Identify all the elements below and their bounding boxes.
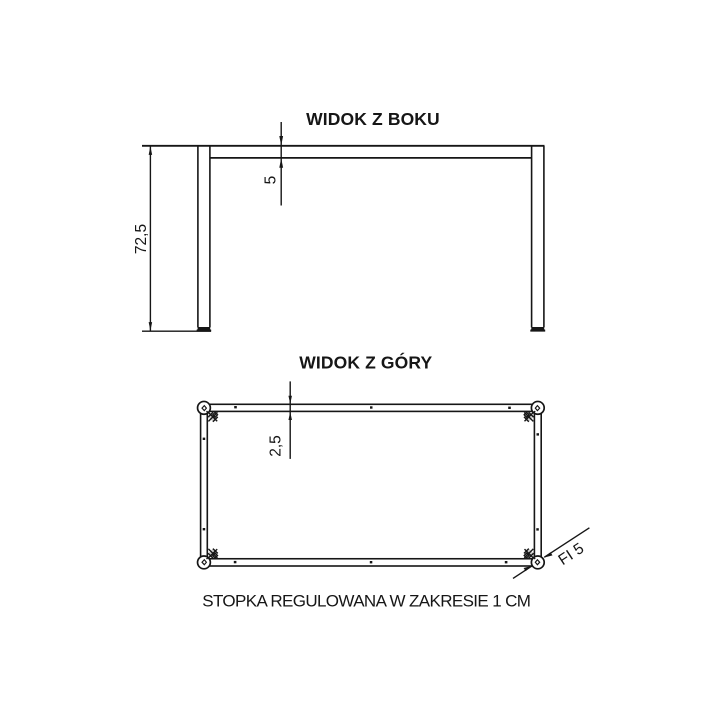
svg-text:5: 5	[263, 176, 280, 185]
svg-text:2,5: 2,5	[268, 435, 285, 457]
svg-text:WIDOK Z GÓRY: WIDOK Z GÓRY	[299, 352, 432, 373]
svg-text:72,5: 72,5	[133, 224, 150, 254]
svg-text:WIDOK Z BOKU: WIDOK Z BOKU	[306, 109, 440, 129]
svg-text:STOPKA REGULOWANA W ZAKRESIE 1: STOPKA REGULOWANA W ZAKRESIE 1 CM	[202, 592, 530, 611]
